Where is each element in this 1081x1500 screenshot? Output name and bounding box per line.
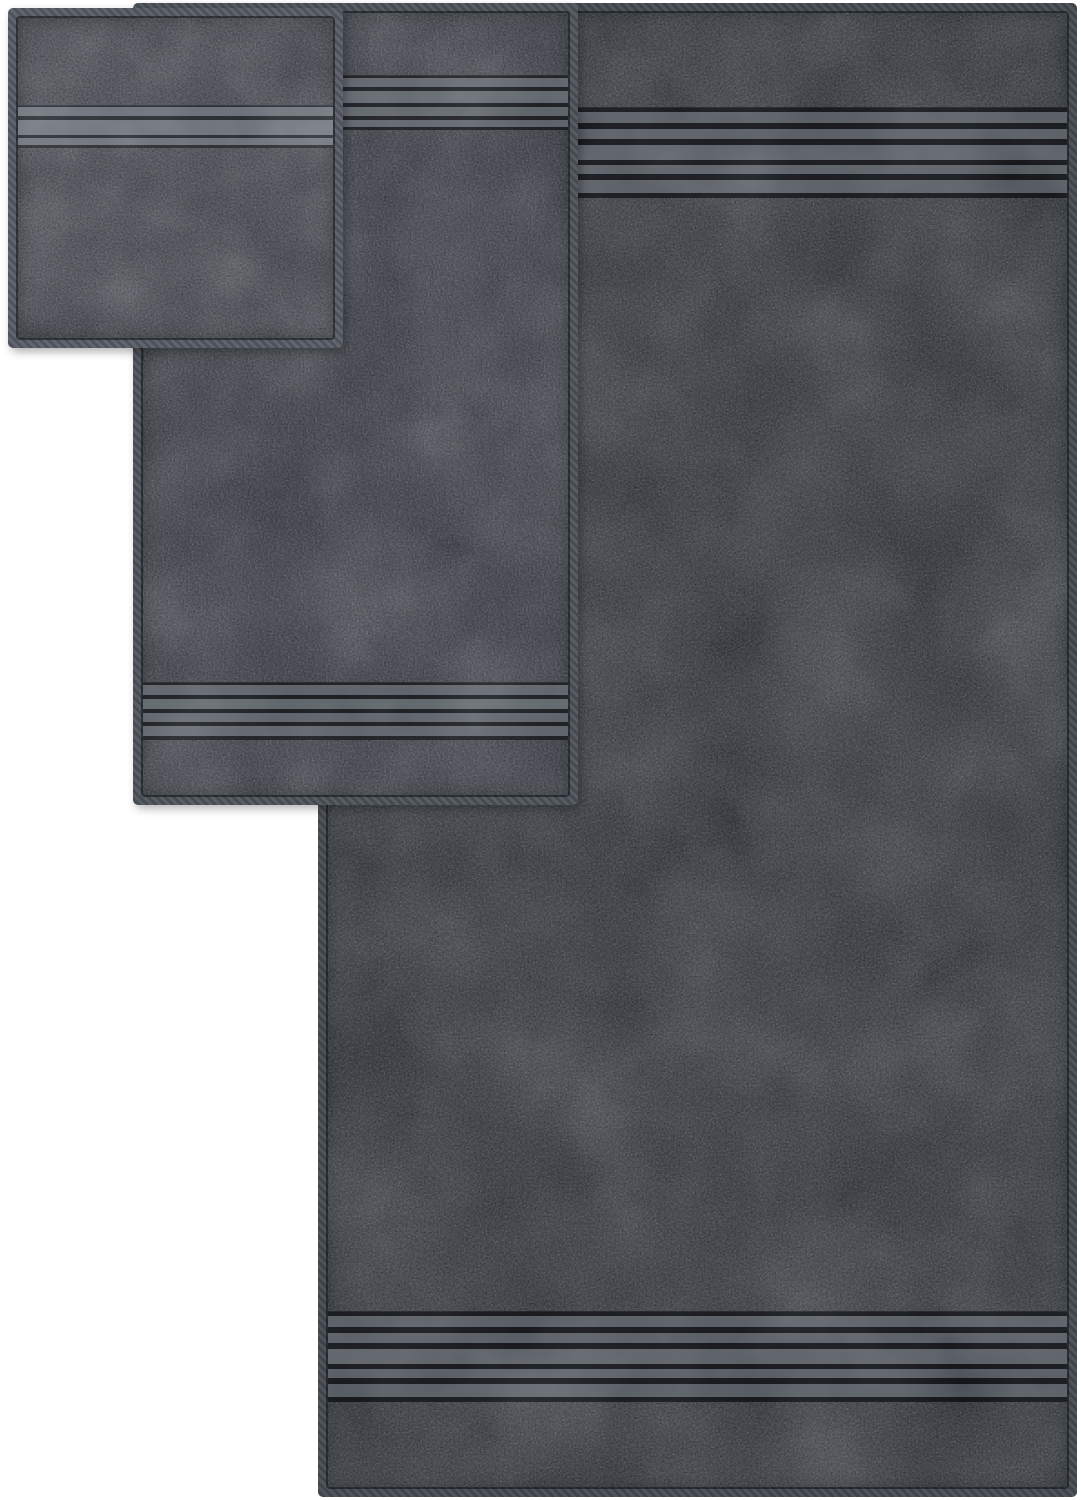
washcloth: [8, 8, 343, 348]
washcloth-stripe-band: [18, 105, 333, 148]
washcloth-body: [18, 18, 333, 338]
product-photo-canvas: [0, 0, 1081, 1500]
bath-towel-bottom-stripe-band: [328, 1311, 1067, 1402]
hand-towel-bottom-stripe-band: [143, 682, 568, 740]
washcloth-shading-texture: [18, 18, 333, 338]
washcloth-terry-texture: [18, 18, 333, 338]
